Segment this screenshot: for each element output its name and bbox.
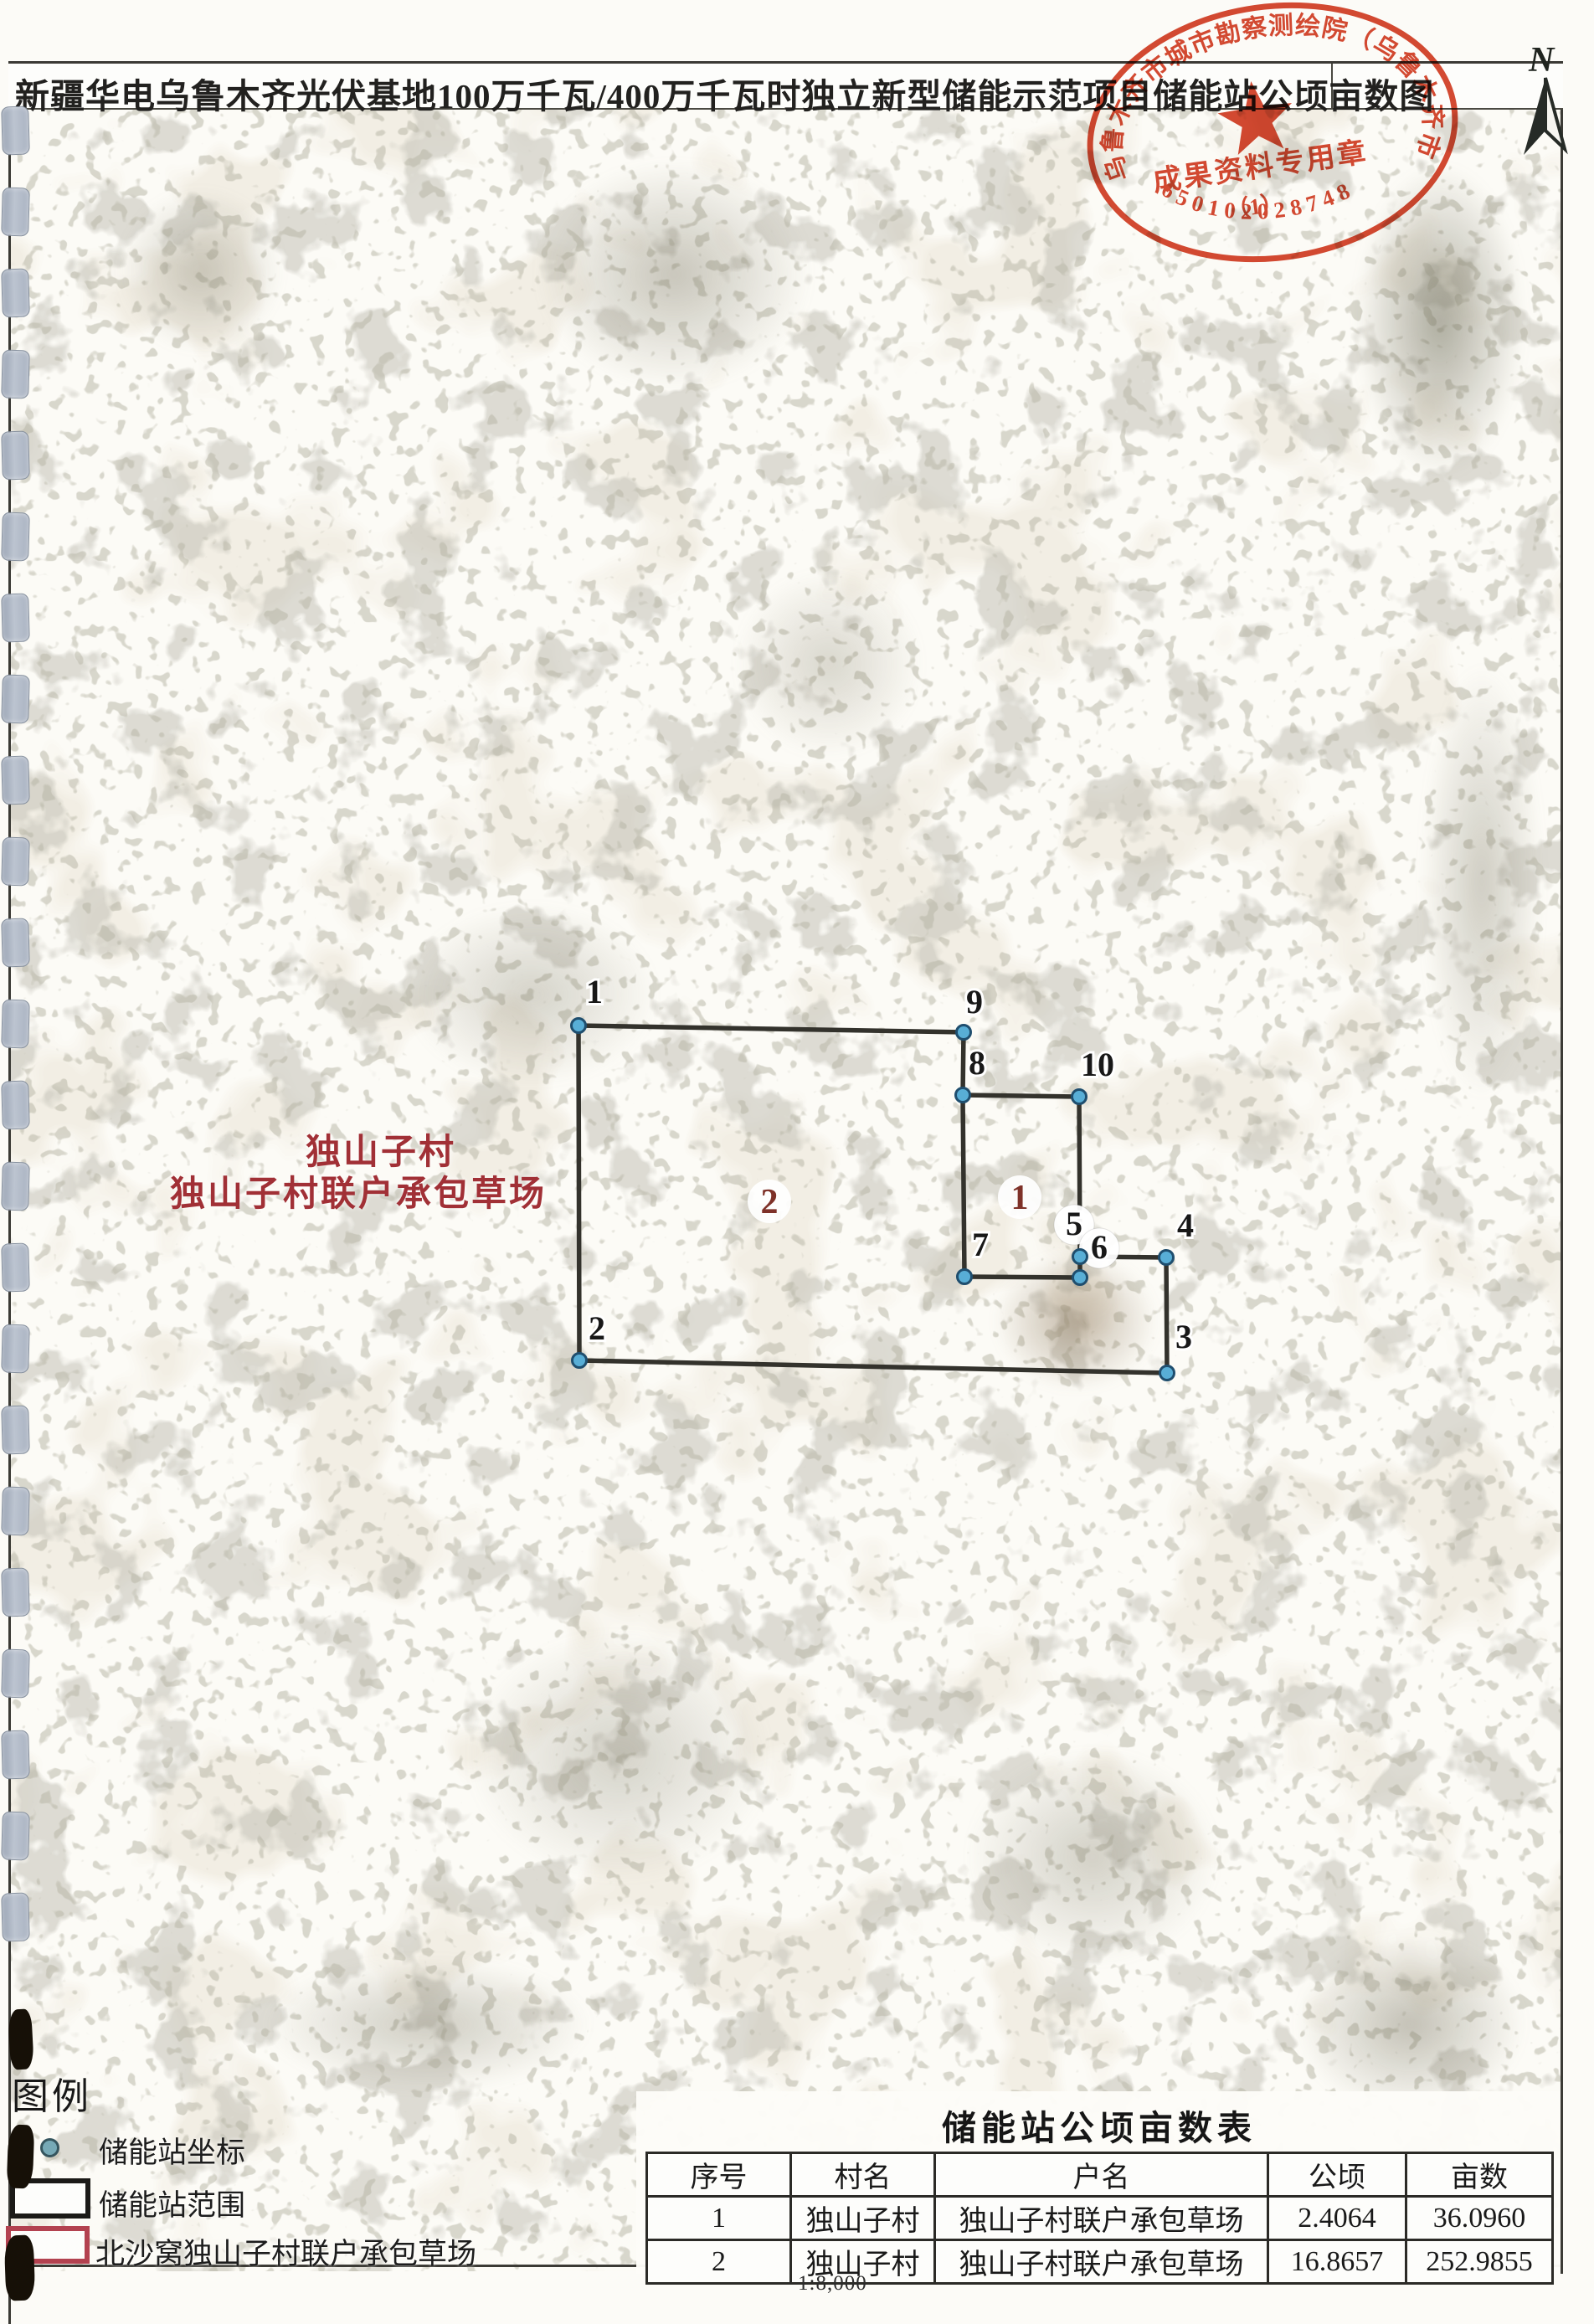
- cell-index: 2: [647, 2240, 791, 2284]
- binder-tab: [1, 1649, 30, 1699]
- page-title: 新疆华电乌鲁木齐光伏基地100万千瓦/400万千瓦时独立新型储能示范项目储能站公…: [15, 68, 1434, 118]
- col-header-household: 户名: [935, 2153, 1268, 2197]
- binder-tab: [1, 106, 30, 156]
- binder-tab: [1, 1812, 30, 1861]
- binder-tab: [1, 269, 30, 318]
- cell-hectares: 16.8657: [1268, 2240, 1406, 2284]
- map-scale: 1:8,000: [798, 2272, 867, 2296]
- binder-tab: [1, 350, 30, 399]
- legend-title: 图例: [12, 2066, 92, 2120]
- binder-tab: [1, 1081, 30, 1130]
- binder-tab: [1, 512, 30, 562]
- col-header-village: 村名: [791, 2153, 935, 2197]
- legend-point-symbol: [40, 2138, 59, 2157]
- border-right: [1561, 61, 1563, 2274]
- binder-tab: [1, 837, 30, 887]
- binder-tab: [1, 1406, 30, 1455]
- cell-mu: 252.9855: [1406, 2240, 1553, 2284]
- binder-tab: [1, 188, 30, 237]
- place-label-line2: 独山子村联户承包草场: [170, 1165, 547, 1216]
- binder-tab: [1, 1162, 30, 1211]
- binder-tab: [1, 1568, 30, 1617]
- cell-household: 独山子村联户承包草场: [935, 2240, 1268, 2284]
- title-strip: 新疆华电乌鲁木齐光伏基地100万千瓦/400万千瓦时独立新型储能示范项目储能站公…: [8, 61, 1563, 110]
- area-table: 序号 村名 户名 公顷 亩数 1 独山子村 独山子村联户承包草场 2.4064 …: [645, 2152, 1554, 2285]
- table-row: 1 独山子村 独山子村联户承包草场 2.4064 36.0960: [647, 2197, 1553, 2240]
- legend-item-coords: 储能站坐标: [99, 2129, 245, 2172]
- binder-tab: [1, 1487, 30, 1536]
- cell-household: 独山子村联户承包草场: [935, 2197, 1268, 2240]
- cell-village: 独山子村: [791, 2197, 935, 2240]
- ink-mark: [4, 2234, 36, 2301]
- table-title: 储能站公顷亩数表: [942, 2100, 1257, 2150]
- ink-mark: [7, 2124, 35, 2188]
- map-sheet: 新疆华电乌鲁木齐光伏基地100万千瓦/400万千瓦时独立新型储能示范项目储能站公…: [0, 0, 1594, 2324]
- north-label: N: [1529, 40, 1554, 80]
- binder-tab: [1, 675, 30, 724]
- cell-index: 1: [647, 2197, 791, 2240]
- table-row: 2 独山子村 独山子村联户承包草场 16.8657 252.9855: [647, 2240, 1553, 2284]
- binder-tab: [1, 1730, 30, 1780]
- binder-tab: [1, 918, 30, 968]
- ink-mark: [8, 2008, 34, 2069]
- col-header-mu: 亩数: [1406, 2153, 1553, 2197]
- table-header-row: 序号 村名 户名 公顷 亩数: [647, 2153, 1553, 2197]
- binder-tab: [1, 756, 30, 805]
- cell-mu: 36.0960: [1406, 2197, 1553, 2240]
- binder-tab: [1, 1000, 30, 1049]
- col-header-hectares: 公顷: [1268, 2153, 1406, 2197]
- binder-tab: [1, 431, 30, 481]
- binder-tab: [1, 594, 30, 643]
- legend-item-grassland: 北沙窝独山子村联户承包草场: [95, 2230, 476, 2273]
- binder-tab: [1, 1243, 30, 1293]
- legend-item-extent: 储能站范围: [99, 2182, 245, 2224]
- col-header-index: 序号: [647, 2153, 791, 2197]
- binder-tab: [1, 1324, 30, 1374]
- cell-hectares: 2.4064: [1268, 2197, 1406, 2240]
- binder-tab: [1, 1893, 30, 1942]
